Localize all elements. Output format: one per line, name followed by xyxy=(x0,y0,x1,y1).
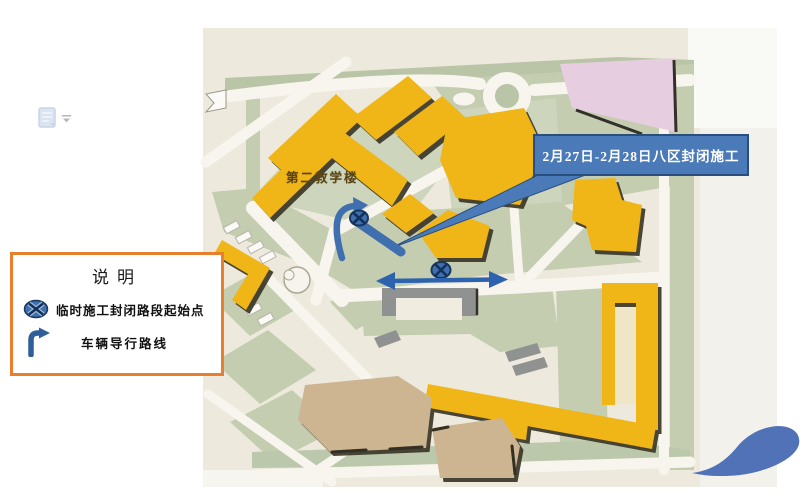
diversion-route-icon xyxy=(25,327,51,357)
closure-point-marker-1 xyxy=(350,211,368,226)
legend-title: 说明 xyxy=(13,263,221,288)
chevron-down-icon[interactable] xyxy=(62,115,71,123)
courtyard xyxy=(615,308,636,404)
slide-canvas: 第二教学楼 2月27日-2月28日八区封闭施工 说明 临时施工封闭路段起始点 车… xyxy=(0,0,811,503)
closure-point-marker-2 xyxy=(432,262,451,278)
legend-item-closure-point: 临时施工封闭路段起始点 xyxy=(23,299,205,319)
legend-box: 说明 临时施工封闭路段起始点 车辆导行路线 xyxy=(10,252,224,376)
closure-point-icon xyxy=(23,299,50,319)
construction-callout: 2月27日-2月28日八区封闭施工 xyxy=(533,134,749,176)
legend-item-diversion-route: 车辆导行路线 xyxy=(25,327,168,357)
legend-item-label: 临时施工封闭路段起始点 xyxy=(56,300,205,319)
legend-item-label: 车辆导行路线 xyxy=(81,333,168,352)
clipboard-icon xyxy=(36,105,76,133)
stadium xyxy=(382,288,478,320)
building-label: 第二教学楼 xyxy=(286,167,359,186)
paste-options-button[interactable] xyxy=(36,105,76,138)
fountain xyxy=(284,267,310,293)
callout-text: 2月27日-2月28日八区封闭施工 xyxy=(543,145,740,165)
